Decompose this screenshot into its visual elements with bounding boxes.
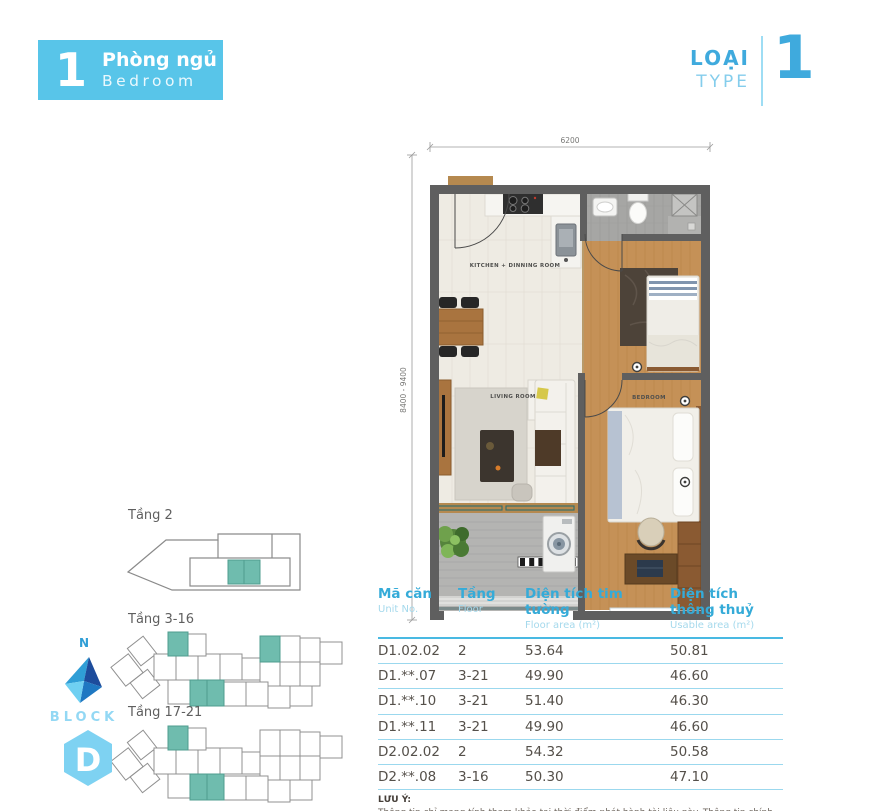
floor-plan: 6200 8400 - 9400 [385, 130, 720, 625]
floor3-16-diagram [108, 630, 348, 712]
table-row: D1.**.073-2149.9046.60 [378, 664, 783, 689]
table-row: D1.02.02253.6450.81 [378, 639, 783, 664]
block-label: BLOCK [46, 710, 122, 725]
north-compass-icon [58, 654, 110, 706]
table-row: D1.**.103-2151.4046.30 [378, 689, 783, 714]
dim-height-label: 8400 - 9400 [399, 367, 408, 413]
brochure-page: 1 Phòng ngủ Bedroom LOẠI TYPE 1 6200 840… [0, 0, 870, 811]
type-divider [761, 36, 763, 106]
balcony-plant [437, 526, 469, 558]
toilet [628, 193, 648, 201]
floor17-21-label: Tầng 17-21 [128, 705, 202, 720]
floor17-21-diagram [108, 724, 348, 806]
note-title: LƯU Ý: [378, 795, 783, 805]
block-name: D [75, 741, 102, 779]
double-bed [608, 406, 701, 524]
col-usablearea-vn: Diện tích thông thuỷ [670, 586, 783, 618]
dim-width-label: 6200 [560, 136, 579, 145]
bedroom-count: 1 [55, 47, 87, 93]
unit-table: Mã cănUnit No. TầngFloor Diện tích tim t… [378, 586, 783, 811]
shower-drain [688, 223, 695, 230]
table-row: D1.**.113-2149.9046.60 [378, 715, 783, 740]
washing-machine [543, 516, 575, 572]
type-labels: LOẠI TYPE [655, 46, 750, 92]
block-d-badge: D [61, 728, 115, 788]
col-unit-en: Unit No. [378, 604, 458, 615]
col-usablearea-en: Usable area (m²) [670, 620, 783, 631]
bedroom-count-badge: 1 Phòng ngủ Bedroom [38, 40, 223, 100]
desk-chair [638, 518, 664, 546]
badge-title-vn: Phòng ngủ [102, 50, 217, 72]
col-floorarea-en: Floor area (m²) [525, 620, 670, 631]
col-floorarea-vn: Diện tích tim tường [525, 586, 670, 618]
coffee-table [480, 430, 514, 482]
badge-title-en: Bedroom [102, 72, 217, 91]
living-label: LIVING ROOM [490, 394, 536, 400]
table-row: D2.**.083-1650.3047.10 [378, 765, 783, 790]
type-number: 1 [773, 28, 815, 88]
col-floor-vn: Tầng [458, 586, 525, 602]
col-unit-vn: Mã căn [378, 586, 458, 602]
entry-door-slab [448, 176, 493, 185]
floor2-diagram [122, 528, 307, 606]
table-header: Mã cănUnit No. TầngFloor Diện tích tim t… [378, 586, 783, 639]
kitchen-label: KITCHEN + DINNING ROOM [470, 263, 561, 269]
floor3-16-label: Tầng 3-16 [128, 612, 194, 627]
single-bed [647, 276, 699, 371]
pouf [512, 484, 532, 501]
shower-area [668, 216, 701, 234]
floor2-label: Tầng 2 [128, 508, 173, 523]
bedroom-label: BEDROOM [632, 395, 666, 401]
north-label: N [58, 636, 110, 650]
col-floor-en: Floor [458, 604, 525, 615]
type-label-en: TYPE [655, 72, 750, 92]
type-label-vn: LOẠI [655, 46, 750, 70]
table-row: D2.02.02254.3250.58 [378, 740, 783, 765]
